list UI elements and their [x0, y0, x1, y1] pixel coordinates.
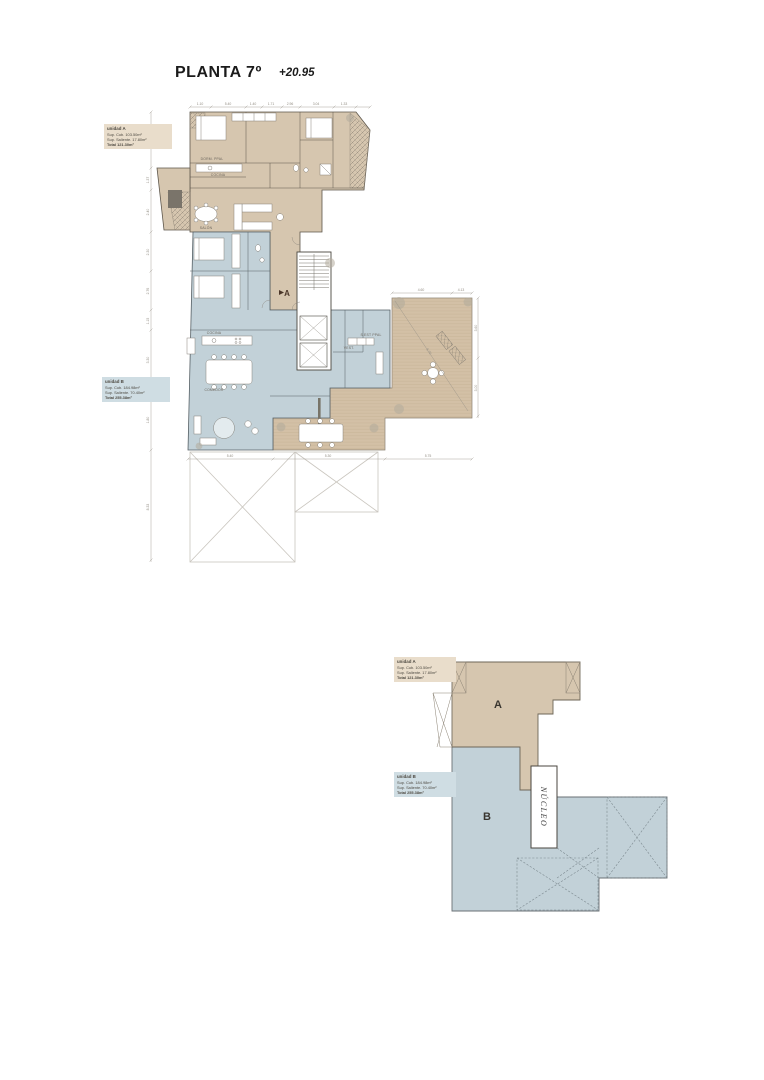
plan-drawing: 1.10 5.40 1.40 1.71 2.96 3.04 1.33 3.18 …	[0, 0, 764, 1080]
svg-text:1.40: 1.40	[250, 102, 257, 106]
svg-text:2.30: 2.30	[146, 249, 150, 256]
svg-text:COCINA: COCINA	[211, 173, 226, 177]
svg-text:1.33: 1.33	[341, 102, 348, 106]
svg-text:2.96: 2.96	[287, 102, 294, 106]
unit-b-title: unidad B	[105, 379, 167, 385]
svg-text:3.60: 3.60	[474, 325, 478, 332]
svg-text:2.76: 2.76	[146, 288, 150, 295]
svg-text:1.71: 1.71	[268, 102, 275, 106]
svg-text:2.40: 2.40	[146, 209, 150, 216]
svg-text:5.40: 5.40	[227, 454, 234, 458]
stair-core	[297, 252, 331, 370]
svg-text:5.40: 5.40	[225, 102, 232, 106]
svg-text:A: A	[284, 289, 290, 298]
unit-b-total: Total 255.38m²	[105, 395, 167, 400]
unit-a-title: unidad A	[397, 659, 453, 665]
svg-text:DORM. PPAL: DORM. PPAL	[201, 157, 224, 161]
shaft-block	[168, 190, 182, 208]
svg-text:4.60: 4.60	[418, 288, 425, 292]
svg-text:S.EST PPAL: S.EST PPAL	[360, 333, 381, 337]
key-plan: NÚCLEO A B	[433, 662, 667, 911]
unit-b-total: Total 255.38m²	[397, 790, 453, 795]
unit-a-title: unidad A	[107, 126, 169, 132]
unit-b-label-main: unidad B Sup. Cub. 184.98m² Sup. Salient…	[102, 377, 170, 402]
unit-a-label-key: unidad A Sup. Cub. 103.50m² Sup. Salient…	[394, 657, 456, 682]
svg-text:1.80: 1.80	[146, 417, 150, 424]
svg-text:8.33: 8.33	[146, 504, 150, 511]
svg-text:3.04: 3.04	[313, 102, 320, 106]
nucleo-label: NÚCLEO	[539, 786, 549, 828]
unit-b-title: unidad B	[397, 774, 453, 780]
unit-a-total: Total 121.30m²	[107, 142, 169, 147]
svg-text:VEST.: VEST.	[344, 346, 354, 350]
svg-text:5.30: 5.30	[325, 454, 332, 458]
balcony-hatch-right	[350, 113, 370, 188]
key-letter-b: B	[483, 811, 491, 823]
svg-text:1.37: 1.37	[146, 177, 150, 184]
svg-text:1.10: 1.10	[197, 102, 204, 106]
unit-b-label-key: unidad B Sup. Cub. 184.98m² Sup. Salient…	[394, 772, 456, 797]
svg-text:1.15: 1.15	[146, 318, 150, 325]
key-unit-b-shape	[452, 747, 667, 911]
svg-text:5.75: 5.75	[425, 454, 432, 458]
svg-text:SALÓN: SALÓN	[200, 225, 213, 230]
unit-a-label-main: unidad A Sup. Cub. 103.50m² Sup. Salient…	[104, 124, 172, 149]
key-letter-a: A	[494, 699, 502, 711]
svg-text:COMEDOR: COMEDOR	[204, 388, 223, 392]
svg-text:3.30: 3.30	[146, 357, 150, 364]
svg-text:COCINA: COCINA	[207, 331, 222, 335]
lower-roof-outlines	[190, 452, 378, 562]
floor-plan-page: PLANTA 7º +20.95	[0, 0, 764, 1080]
unit-a-total: Total 121.30m²	[397, 675, 453, 680]
svg-text:4.13: 4.13	[458, 288, 465, 292]
svg-text:3.00: 3.00	[474, 385, 478, 392]
